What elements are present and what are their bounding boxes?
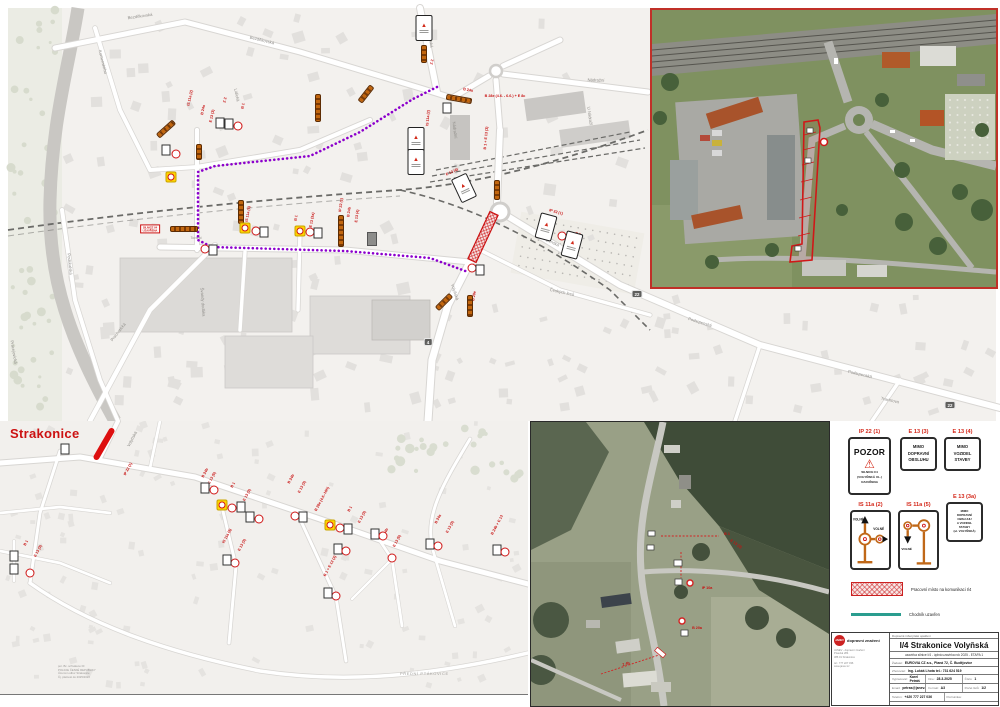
cell-label: Dne: — [928, 677, 934, 681]
aerial-detail-canvas — [652, 10, 996, 287]
is11a-diagram: VOLNÉ — [900, 513, 937, 567]
sign-code: IP 22 (1) — [859, 429, 880, 435]
legend-sign-is11a-5: IS 11a (5) VOLNÉ — [898, 502, 939, 570]
sign-code: E 13 (4) — [953, 429, 973, 435]
sign-line: (ul. VOLYŇSKÁ) — [954, 530, 976, 534]
cell-label: Email: — [892, 686, 900, 690]
cell-value: 1 — [974, 677, 976, 681]
cell-label: Počet listů: — [965, 686, 980, 690]
title-row: Telefon:+420 777 227 036Poznámka: — [890, 693, 998, 702]
title-cell: Email:petras@janev.cz — [890, 684, 926, 692]
legend-sign-e13-4: E 13 (4) MIMO VOZIDEL STAVBY — [944, 429, 981, 471]
sign-line: UZAVŘENA — [861, 481, 878, 485]
cell-label: Číslo: — [965, 677, 973, 681]
is11a-sign: VOLNÉ VOLNÉ — [850, 510, 891, 570]
sign-code: IS 11a (2) — [858, 502, 882, 508]
company-logo: JANEV — [834, 635, 845, 646]
aerial-south-canvas — [531, 422, 829, 706]
title-block: JANEV dopravní značení JANEV - dopravní … — [831, 632, 999, 706]
sign-line: OBSLUHU — [908, 457, 928, 463]
cell-label: Poznámka: — [947, 695, 962, 699]
title-detail-rows: Vypracoval:Karel PetrášDne:28.3.2025Čísl… — [890, 675, 998, 702]
applicant-value: EUROVIA CZ a.s., Planá 72, Č. Budějovice — [905, 661, 972, 665]
document-subtitle: uzavírka silnice I/4 - úplná uzavírka ro… — [890, 652, 998, 659]
south-street-map: Strakonice PŘEDNÍ PTÁKOVICE por. Bc. sch… — [0, 421, 528, 695]
dio-plan-sheet: BezděkovskáBezděkovskáKomenskéhoLidickáP… — [0, 0, 1000, 707]
svg-text:VOLNÉ: VOLNÉ — [853, 517, 864, 522]
title-cell: Dne:28.3.2025 — [926, 675, 962, 683]
traffic-sign-legend: IP 22 (1) POZOR ⚠ SILNICE I/4 (VOLYŇSKÁ … — [836, 424, 1000, 630]
cell-value: Karel Petráš — [910, 675, 924, 683]
cell-value: +420 777 227 036 — [905, 695, 932, 699]
legend-item-workzone: Pracovní místo na komunikaci I/4 — [851, 582, 971, 596]
aerial-photo-south: B 1E 13 (3)IP 10aB 20aZ 4b — [530, 421, 830, 707]
title-cell: Číslo:1 — [963, 675, 998, 683]
applicant-label: Žadatel: — [892, 661, 903, 665]
pozor-text: POZOR — [854, 447, 885, 457]
e13-sign: MIMO DOPRAVNÍ OBSLUHU — [900, 437, 937, 471]
cell-value: 1/2 — [981, 686, 986, 690]
title-cell: Vypracoval:Karel Petráš — [890, 675, 926, 683]
title-cell: Telefon:+420 777 227 036 — [890, 693, 945, 701]
title-main-cell: Dopravně inženýrské opatření I/4 Strakon… — [890, 633, 998, 705]
sign-code: E 13 (3) — [909, 429, 929, 435]
aerial-photo-detail — [650, 8, 998, 289]
cell-value: A3 — [941, 686, 945, 690]
sign-code: IS 11a (5) — [906, 502, 930, 508]
company-line: www.janev.cz — [834, 665, 887, 668]
cell-value: 28.3.2025 — [937, 677, 952, 681]
sign-line: STAVBY — [955, 457, 971, 463]
cell-label: Telefon: — [892, 695, 903, 699]
company-cell: JANEV dopravní značení JANEV - dopravní … — [832, 633, 890, 705]
title-row: Vypracoval:Karel PetrášDne:28.3.2025Čísl… — [890, 675, 998, 684]
title-cell: Formát:A3 — [926, 684, 962, 692]
document-title: I/4 Strakonice Volyňská — [890, 639, 998, 652]
svg-text:VOLNÉ: VOLNÉ — [873, 526, 884, 531]
cell-value: petras@janev.cz — [902, 686, 926, 690]
warning-triangle-icon: ⚠ — [864, 458, 875, 470]
company-line: 386 01 Strakonice — [834, 656, 887, 659]
company-name: dopravní značení — [847, 638, 880, 643]
cell-label: Vypracoval: — [892, 677, 908, 681]
is11a-sign: VOLNÉ — [898, 510, 939, 570]
legend-item-label: Chodník uzavřen — [909, 612, 940, 617]
pozor-sign: POZOR ⚠ SILNICE I/4 (VOLYŇSKÁ UL.) UZAVŘ… — [848, 437, 891, 495]
e13-sign: MIMO VOZIDEL STAVBY — [944, 437, 981, 471]
title-cell: Počet listů:1/2 — [963, 684, 998, 692]
legend-sign-is11a-2: IS 11a (2) VOLNÉ VOLNÉ — [850, 502, 891, 570]
sign-code: E 13 (3a) — [953, 494, 976, 500]
e13a-sign: MIMO DOPRAVNÍ OBSLUHU A VOZIDEL STAVBY (… — [946, 502, 983, 542]
company-contact: tel.: 777 227 036www.janev.cz — [834, 662, 887, 669]
legend-sign-e13-3a: E 13 (3a) MIMO DOPRAVNÍ OBSLUHU A VOZIDE… — [946, 494, 983, 542]
is11a-diagram: VOLNÉ VOLNÉ — [852, 513, 889, 567]
legend-sign-ip22: IP 22 (1) POZOR ⚠ SILNICE I/4 (VOLYŇSKÁ … — [848, 429, 891, 495]
company-address: JANEV - dopravní značeníPísecká 284386 0… — [834, 649, 887, 659]
legend-item-sidewalk: Chodník uzavřen — [851, 612, 940, 617]
cell-label: Formát: — [928, 686, 938, 690]
legend-sign-e13-3: E 13 (3) MIMO DOPRAVNÍ OBSLUHU — [900, 429, 937, 471]
workzone-swatch — [851, 582, 903, 596]
sidewalk-closed-swatch — [851, 613, 901, 616]
title-cell: Poznámka: — [945, 693, 999, 701]
south-map-canvas — [0, 421, 528, 694]
title-row: Email:petras@janev.czFormát:A3Počet list… — [890, 684, 998, 693]
contractor-label: Zhotovitel: — [892, 669, 906, 673]
svg-text:VOLNÉ: VOLNÉ — [901, 546, 912, 551]
contractor-value: Ing. Lukáš Lhota tel.: 731 624 519 — [908, 669, 962, 673]
legend-item-label: Pracovní místo na komunikaci I/4 — [911, 587, 971, 592]
